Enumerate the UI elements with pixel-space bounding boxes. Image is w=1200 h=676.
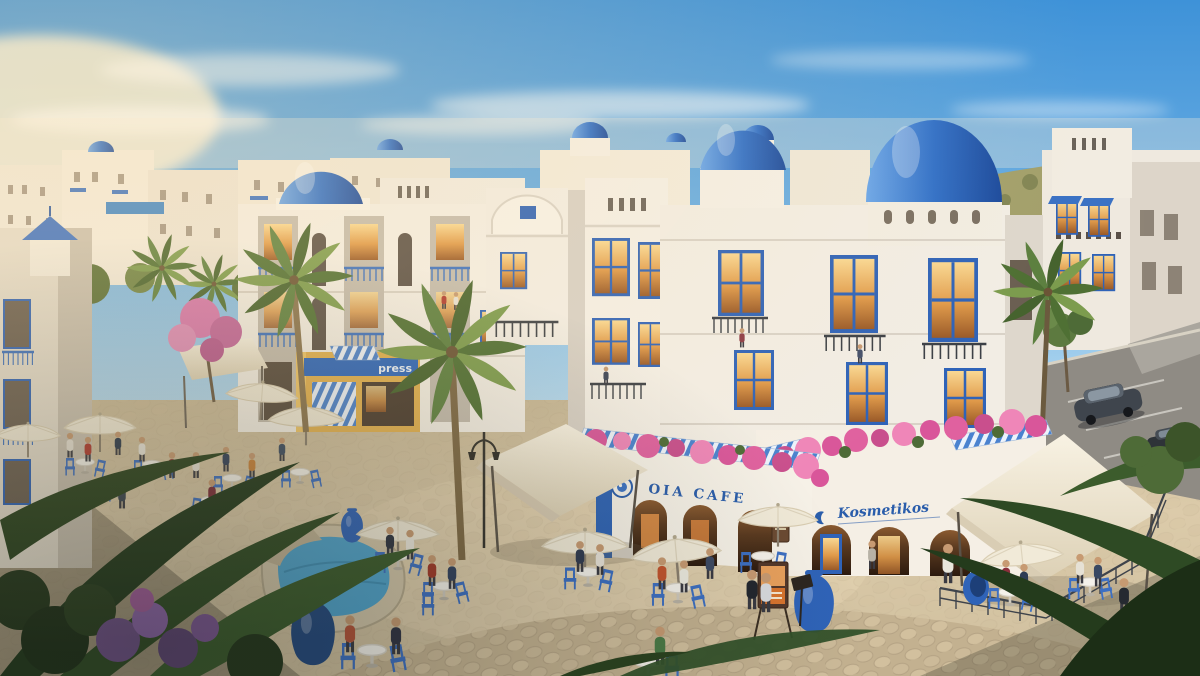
corner-shade-overlay: [0, 0, 1200, 676]
scene-canvas: press: [0, 0, 1200, 676]
resort-render: press: [0, 0, 1200, 676]
